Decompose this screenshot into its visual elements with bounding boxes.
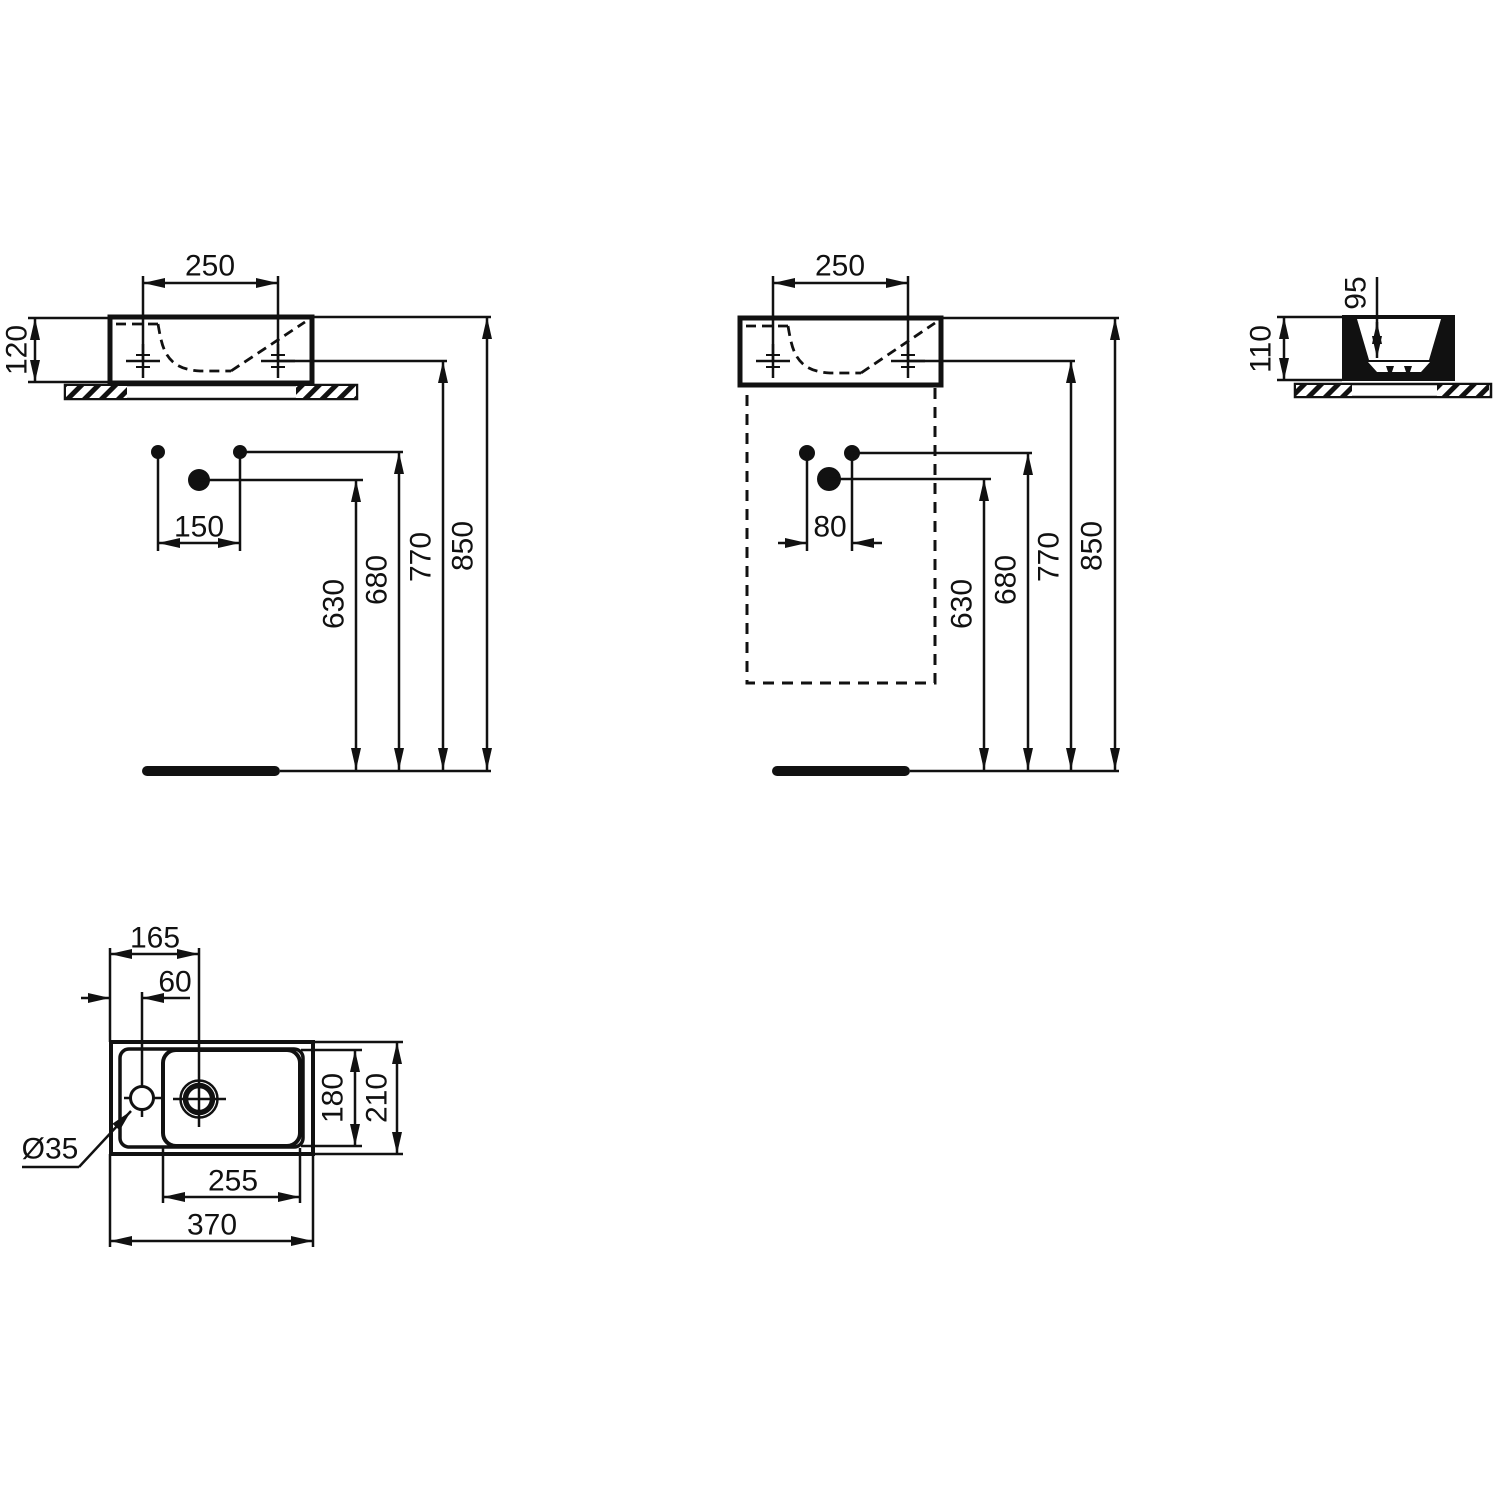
wall-hatch-left xyxy=(66,386,127,398)
dim-label: 150 xyxy=(174,511,224,544)
dim-110: 110 xyxy=(1245,317,1343,380)
washbasin-dimension-drawing: 250 120 150 630 680 xyxy=(0,0,1500,1500)
dim-label: 165 xyxy=(130,922,180,955)
dim-680: 680 xyxy=(361,452,400,770)
technical-drawing-page: 250 120 150 630 680 xyxy=(0,0,1500,1500)
dim-label: 95 xyxy=(1340,276,1373,309)
dim-label: 630 xyxy=(946,579,979,629)
dim-label: 850 xyxy=(447,521,480,571)
plan-view: 165 60 180 210 255 xyxy=(22,922,403,1248)
dim-label: 680 xyxy=(361,555,394,605)
dim-label: 60 xyxy=(158,966,191,999)
tap-hole-circle xyxy=(131,1087,154,1110)
dim-label: 180 xyxy=(317,1073,350,1123)
dim-label: 370 xyxy=(187,1209,237,1242)
dim-150: 150 xyxy=(158,452,240,551)
front-view-wall-mounted: 250 120 150 630 680 xyxy=(1,250,492,772)
basin-outline xyxy=(110,317,312,383)
dim-label: 770 xyxy=(405,532,438,582)
basin-drain-recess xyxy=(1368,362,1430,372)
dim-60: 60 xyxy=(81,966,192,999)
side-section-view: 95 110 xyxy=(1245,276,1492,397)
dim-label: 770 xyxy=(1033,532,1066,582)
dim-label: 110 xyxy=(1245,325,1278,373)
dim-label: 250 xyxy=(185,250,235,283)
dim-label: 255 xyxy=(208,1165,258,1198)
front-view-with-furniture: 250 80 630 680 770 xyxy=(740,250,1119,772)
dim-label: 210 xyxy=(361,1073,394,1123)
dim-label: 80 xyxy=(813,511,846,544)
dim-680: 680 xyxy=(990,453,1029,770)
dim-630: 630 xyxy=(318,480,357,770)
dim-120: 120 xyxy=(1,318,111,382)
dim-630: 630 xyxy=(946,479,985,770)
basin-outline xyxy=(740,318,941,385)
dim-label: 120 xyxy=(1,325,34,375)
dim-label: Ø35 xyxy=(22,1133,79,1166)
dim-label: 850 xyxy=(1076,521,1109,571)
dim-255: 255 xyxy=(163,1148,300,1203)
dim-label: 630 xyxy=(318,579,351,629)
wall-hatch-right xyxy=(296,386,356,398)
wall-hatch-right xyxy=(1437,385,1489,396)
dim-label: 680 xyxy=(990,555,1023,605)
basin-cavity xyxy=(1357,319,1441,360)
dim-850: 850 xyxy=(941,318,1119,770)
wall-hatch-left xyxy=(1296,385,1352,396)
dim-label: 250 xyxy=(815,250,865,283)
